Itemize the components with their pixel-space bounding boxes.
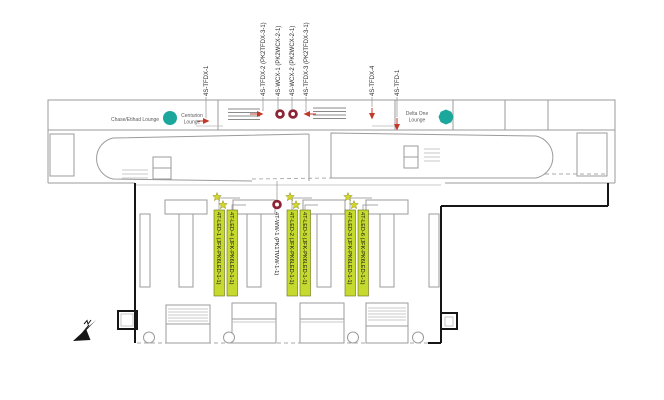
right-elevator-box <box>441 313 457 329</box>
top-labels: 4S-TFDX-1 4S-TFDX-2 (PK2TFDX-3-1) 4S-WCX… <box>204 22 401 118</box>
annotation-label: 4T-LED-6 (JFK-PK6LED-1-1) <box>359 212 365 285</box>
star-icon <box>213 193 222 201</box>
annotation-label: 4T-LED-2 (JFK-PK6LED-1-1) <box>288 212 294 285</box>
right-hall <box>331 133 553 178</box>
walkway-2 <box>313 108 346 119</box>
annotation-label: 4S-TFDX-4 <box>370 65 376 96</box>
t-pier <box>165 200 207 287</box>
gate-boxes <box>137 303 428 343</box>
gate-box-2 <box>232 303 276 343</box>
star-icon <box>292 201 301 209</box>
t-pier <box>233 200 275 287</box>
pier-stub <box>429 214 439 287</box>
white-label-4t-ww-1: 4T-WW-1 (PK1TWW-1-1) <box>273 212 279 275</box>
centurion-lounge-label: Centurion <box>181 113 203 119</box>
annotation-4s-tfdx-4: 4S-TFDX-4 <box>370 65 376 107</box>
annotation-label: 4T-LED-4 (JFK-PK6LED-1-1) <box>228 212 234 285</box>
halls <box>97 133 553 181</box>
door-swing <box>144 332 155 343</box>
annotation-4s-tfd-1: 4S-TFD-1 <box>395 69 401 117</box>
mid-labels: 4T-LED-1 (JFK-PK6LED-1-1) 4T-LED-4 (JFK-… <box>213 181 378 296</box>
t-pier <box>366 200 408 287</box>
annotation-label: 4S-WCX-2 (PK2WCX-2-1) <box>290 26 296 96</box>
annotation-label: 4S-TFDX-2 (PK2TFDX-3-1) <box>261 22 267 96</box>
star-icon <box>344 193 353 201</box>
annotation-label: 4S-TFDX-3 (PK2TFDX-3-1) <box>304 22 310 96</box>
star-icon <box>350 201 359 209</box>
annotation-label: 4T-LED-5 (JFK-PK6LED-1-1) <box>301 212 307 285</box>
gate-box-3 <box>300 303 344 343</box>
annotation-label: 4T-WW-1 (PK1TWW-1-1) <box>273 212 279 275</box>
donut-marker <box>274 201 281 208</box>
door-swing <box>348 332 359 343</box>
floorplan-canvas: Chase/Etihad Lounge Centurion Lounge Del… <box>0 0 664 400</box>
donut-marker <box>290 111 297 118</box>
star-icon <box>219 201 228 209</box>
delta-one-lounge-label: Delta One <box>406 111 429 117</box>
left-room <box>50 134 74 176</box>
annotation-label: 4S-TFD-1 <box>395 69 401 96</box>
highlighted-label-4t-led-4: 4T-LED-4 (JFK-PK6LED-1-1) <box>227 210 238 296</box>
annotation-label: 4T-LED-3 (JFK-PK6LED-1-1) <box>346 212 352 285</box>
right-elevator-detail <box>445 317 453 326</box>
hall-opening <box>252 178 331 179</box>
centurion-lounge-label: Lounge <box>184 120 201 126</box>
highlighted-label-4t-led-6: 4T-LED-6 (JFK-PK6LED-1-1) <box>358 210 369 296</box>
annotation-4s-tfdx-1: 4S-TFDX-1 <box>204 65 210 118</box>
left-stair-detail <box>121 314 133 326</box>
centurion-lounge-icon <box>163 111 177 125</box>
annotation-label: 4T-LED-1 (JFK-PK6LED-1-1) <box>215 212 221 285</box>
donut-marker <box>277 111 284 118</box>
annotation-4s-wcx-1: 4S-WCX-1 (PK2WCX-2-1) <box>276 26 282 110</box>
delta-one-lounge-label: Lounge <box>409 118 426 124</box>
highlighted-label-4t-led-5: 4T-LED-5 (JFK-PK6LED-1-1) <box>300 210 311 296</box>
right-room <box>577 133 607 176</box>
door-swing <box>413 332 424 343</box>
highlighted-label-4t-led-3: 4T-LED-3 (JFK-PK6LED-1-1) <box>345 210 356 296</box>
gate-box-4 <box>366 303 408 343</box>
chase-etihad-lounge-label: Chase/Etihad Lounge <box>111 117 159 123</box>
arrow-marker-down <box>369 108 375 120</box>
star-icon <box>286 193 295 201</box>
north-arrow <box>73 320 96 341</box>
red-arrow-markers <box>197 108 400 131</box>
annotation-label: 4S-TFDX-1 <box>204 65 210 96</box>
annotation-label: 4S-WCX-1 (PK2WCX-2-1) <box>276 26 282 96</box>
delta-one-lounge-icon <box>439 110 454 125</box>
gate-box-1 <box>166 305 210 343</box>
door-swing <box>224 332 235 343</box>
annotation-4s-wcx-2: 4S-WCX-2 (PK2WCX-2-1) <box>290 26 296 110</box>
moving-walkways <box>228 108 346 120</box>
annotation-4s-tfdx-2: 4S-TFDX-2 (PK2TFDX-3-1) <box>261 22 267 111</box>
highlighted-label-4t-led-2: 4T-LED-2 (JFK-PK6LED-1-1) <box>287 210 298 296</box>
pier-stub <box>140 214 150 287</box>
annotation-4s-tfdx-3: 4S-TFDX-3 (PK2TFDX-3-1) <box>304 22 310 112</box>
highlighted-label-4t-led-1: 4T-LED-1 (JFK-PK6LED-1-1) <box>214 210 225 296</box>
